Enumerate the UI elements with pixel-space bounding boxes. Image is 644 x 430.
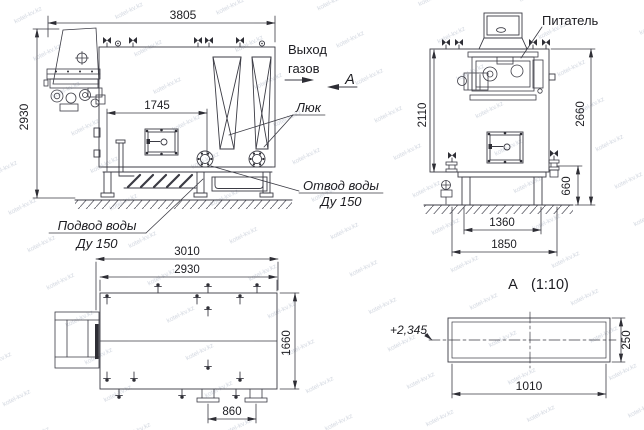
dim-2660-label: 2660: [575, 101, 587, 127]
dim-1010-label: 1010: [516, 379, 543, 393]
water-outlet-label-2: Ду 150: [318, 194, 362, 209]
ground-hatch-front: [424, 205, 573, 214]
dim-250-label: 250: [621, 330, 633, 349]
section-title: А (1:10): [508, 277, 569, 293]
boiler-technical-drawing: kotel-kv.kz: [0, 0, 644, 430]
dim-1660-label: 1660: [281, 330, 293, 356]
dim-860-label: 860: [222, 406, 241, 418]
section-letter: А: [344, 72, 355, 88]
water-outlet-label-1: Отвод воды: [303, 178, 379, 193]
dim-3010-label: 3010: [174, 246, 200, 258]
dim-1745-label: 1745: [144, 100, 170, 112]
section-title-scale: (1:10): [531, 277, 569, 293]
dim-1360-label: 1360: [489, 217, 515, 229]
feeder-label: Питатель: [542, 13, 599, 28]
drawing-sheet: kotel-kv.kz: [0, 0, 644, 430]
section-title-letter: А: [508, 277, 518, 293]
gas-outlet-label-1: Выход: [288, 42, 327, 57]
water-inlet-label-2: Ду 150: [74, 236, 118, 251]
dim-3805-label: 3805: [170, 8, 197, 22]
dim-1850-label: 1850: [491, 239, 517, 251]
dim-2930-label: 2930: [17, 103, 31, 130]
elevation-label: +2,345: [390, 323, 427, 337]
manhole-label: Люк: [295, 100, 322, 115]
water-inlet-label-1: Подвод воды: [58, 218, 137, 233]
ground-hatch: [75, 200, 292, 209]
dim-2930-plan-label: 2930: [174, 264, 200, 276]
dim-2110-label: 2110: [417, 103, 429, 128]
watermark-layer: [0, 0, 644, 430]
dim-660-label: 660: [561, 176, 573, 195]
gas-outlet-label-2: газов: [288, 61, 320, 76]
